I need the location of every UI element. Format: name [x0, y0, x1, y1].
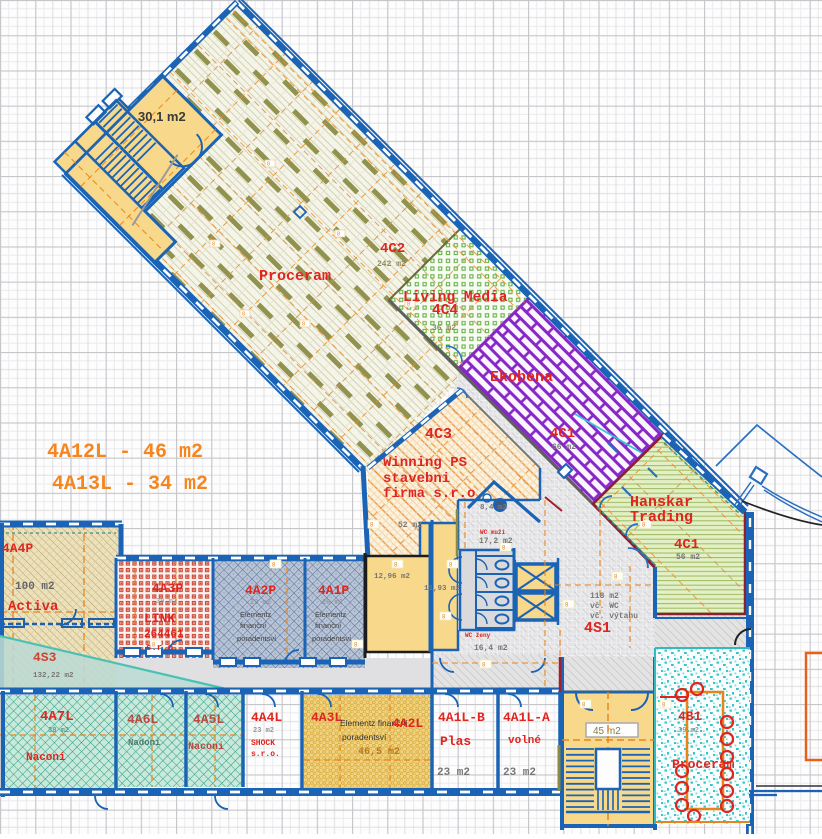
svg-text:17,2 m2: 17,2 m2 [479, 537, 513, 546]
svg-text:WC muži: WC muži [480, 529, 506, 536]
svg-text:4A6L: 4A6L [127, 712, 158, 727]
svg-text:4A3P: 4A3P [152, 581, 183, 596]
svg-text:4A2L: 4A2L [392, 716, 423, 731]
svg-text:29 m2: 29 m2 [322, 599, 343, 607]
svg-text:4S1: 4S1 [584, 620, 611, 637]
svg-text:8: 8 [212, 242, 215, 248]
svg-text:8: 8 [302, 322, 305, 328]
svg-text:LINK: LINK [144, 611, 175, 626]
svg-text:finanční: finanční [240, 621, 267, 630]
svg-text:66 m2: 66 m2 [552, 443, 576, 452]
svg-text:firma s.r.o: firma s.r.o [383, 486, 475, 502]
svg-text:8: 8 [267, 162, 270, 168]
svg-text:4A13L - 34 m2: 4A13L - 34 m2 [52, 473, 208, 496]
svg-text:Ekobena: Ekobena [490, 369, 553, 386]
svg-text:39 m2: 39 m2 [156, 598, 177, 606]
svg-text:4C1: 4C1 [674, 537, 699, 553]
svg-text:Naconi: Naconi [26, 752, 66, 764]
svg-text:38 m2: 38 m2 [48, 727, 69, 735]
svg-text:poradentsví: poradentsví [342, 732, 387, 742]
svg-text:Winning PS: Winning PS [383, 455, 467, 471]
svg-text:poradentsví: poradentsví [312, 634, 352, 643]
svg-text:4A2P: 4A2P [245, 583, 276, 598]
svg-text:118 m2: 118 m2 [590, 592, 619, 601]
svg-text:finanční: finanční [315, 621, 342, 630]
svg-text:11,93 m2: 11,93 m2 [424, 585, 461, 593]
svg-text:8: 8 [337, 232, 340, 238]
svg-text:4S3: 4S3 [33, 650, 57, 665]
svg-text:4A4P: 4A4P [2, 541, 33, 556]
svg-text:4A3L: 4A3L [311, 710, 342, 725]
svg-text:45 m2: 45 m2 [593, 726, 621, 737]
svg-text:52 m2: 52 m2 [398, 521, 422, 530]
svg-text:12,96 m2: 12,96 m2 [374, 573, 411, 581]
svg-text:stavebni: stavebni [383, 471, 450, 487]
svg-text:264461: 264461 [144, 629, 184, 641]
svg-text:4A1L-B: 4A1L-B [438, 710, 485, 725]
svg-text:23 m2: 23 m2 [503, 767, 536, 779]
svg-text:Activa: Activa [8, 599, 59, 615]
svg-text:46,5 m2: 46,5 m2 [358, 747, 400, 758]
svg-text:30,1 m2: 30,1 m2 [138, 109, 186, 124]
svg-text:poradentsví: poradentsví [237, 634, 277, 643]
svg-text:23 m2: 23 m2 [253, 727, 274, 735]
svg-text:Proceram: Proceram [672, 757, 735, 772]
svg-text:vč. WC: vč. WC [590, 602, 619, 611]
svg-text:4C1: 4C1 [550, 426, 575, 442]
svg-text:4C4: 4C4 [432, 303, 458, 319]
svg-text:4C2: 4C2 [380, 241, 405, 257]
svg-text:Proceram: Proceram [259, 268, 331, 285]
svg-text:8,4 m2: 8,4 m2 [480, 504, 508, 512]
svg-text:WC ženy: WC ženy [465, 632, 491, 639]
svg-text:4C3: 4C3 [425, 426, 452, 443]
svg-text:Plas: Plas [440, 734, 471, 749]
svg-text:4B1: 4B1 [678, 709, 702, 724]
svg-text:4A1P: 4A1P [318, 583, 349, 598]
svg-text:56 m2: 56 m2 [676, 553, 700, 562]
svg-text:16,4 m2: 16,4 m2 [474, 644, 508, 653]
svg-text:4A12L - 46 m2: 4A12L - 46 m2 [47, 441, 203, 464]
svg-text:36 m2: 36 m2 [432, 324, 456, 333]
svg-text:39 m2: 39 m2 [678, 727, 699, 735]
svg-text:132,22 m2: 132,22 m2 [33, 672, 74, 680]
svg-text:23 m2: 23 m2 [437, 767, 470, 779]
svg-text:4A7L: 4A7L [40, 709, 74, 725]
svg-text:s.r.o.: s.r.o. [251, 750, 280, 759]
svg-text:SHOCK: SHOCK [251, 739, 275, 748]
svg-text:s.r.o.: s.r.o. [146, 643, 178, 653]
svg-text:volné: volné [508, 735, 541, 747]
svg-text:Naconi: Naconi [188, 741, 224, 753]
svg-text:Elementz: Elementz [315, 610, 347, 619]
svg-text:vč. výtahu: vč. výtahu [590, 612, 638, 621]
svg-text:Trading: Trading [630, 509, 693, 526]
svg-text:100 m2: 100 m2 [15, 581, 55, 593]
svg-text:4A5L: 4A5L [193, 712, 224, 727]
svg-text:8: 8 [242, 312, 245, 318]
svg-text:4A4L: 4A4L [251, 710, 282, 725]
svg-text:4A1L-A: 4A1L-A [503, 710, 550, 725]
svg-text:29 m2: 29 m2 [250, 599, 271, 607]
svg-text:242 m2: 242 m2 [377, 260, 406, 269]
svg-text:Elementz: Elementz [240, 610, 272, 619]
svg-text:Nadoni: Nadoni [128, 738, 161, 748]
